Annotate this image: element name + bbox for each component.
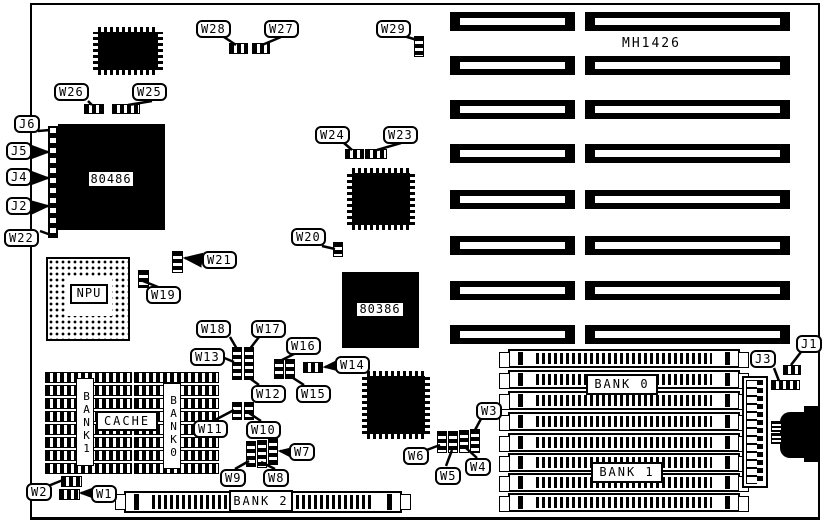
- isa-slot: [450, 144, 575, 163]
- jumper-w7: [268, 438, 278, 465]
- qfp-chip-bottom: [367, 376, 425, 434]
- jumper-w4: [459, 430, 469, 453]
- isa-slot: [450, 56, 575, 75]
- simm-socket-bank0: [508, 349, 740, 368]
- jumper-w24: [345, 149, 364, 159]
- bank0-label: BANK 0: [586, 374, 658, 395]
- callout-w15: W15: [296, 385, 331, 403]
- power-connector-contacts: [757, 380, 763, 484]
- npu-label: NPU: [70, 284, 108, 304]
- callout-w25: W25: [132, 83, 167, 101]
- qfp-chip-top-pins: [98, 70, 158, 75]
- simm-post: [134, 494, 139, 510]
- callout-j3: J3: [750, 350, 776, 368]
- callout-w8: W8: [263, 469, 289, 487]
- simm-contacts: [536, 497, 712, 508]
- isa-slot-opening: [595, 106, 780, 113]
- jumper-w20: [333, 242, 343, 257]
- callout-w26: W26: [54, 83, 89, 101]
- simm-end-tab: [499, 496, 510, 512]
- simm-post: [518, 373, 523, 386]
- simm-end-tab: [499, 352, 510, 368]
- simm-end-tab: [738, 496, 749, 512]
- isa-slot-opening: [460, 331, 565, 338]
- jumper-w16: [274, 359, 284, 379]
- qfp-chip-top: [98, 32, 158, 70]
- simm-socket-bank0: [508, 412, 740, 431]
- jumper-w14: [303, 362, 323, 373]
- simm-post: [725, 352, 730, 365]
- isa-slot: [450, 190, 575, 209]
- cpu-header-strip: [48, 126, 58, 238]
- jumper-w19: [138, 270, 149, 288]
- motherboard-diagram: MH1426 80486 NPU 80386 BANK1 BANK0 CACHE…: [0, 0, 827, 527]
- isa-slot-opening: [595, 18, 780, 25]
- cpu-80486-label: 80486: [87, 170, 135, 188]
- jumper-w9: [246, 441, 256, 467]
- simm-post: [518, 394, 523, 407]
- callout-w6: W6: [403, 447, 429, 465]
- simm-post: [725, 476, 730, 489]
- jumper-w3: [470, 429, 480, 453]
- simm-post: [725, 373, 730, 386]
- isa-slot-opening: [460, 106, 565, 113]
- qfp-chip-middle-pins: [410, 173, 415, 225]
- callout-w19: W19: [146, 286, 181, 304]
- simm-post: [725, 415, 730, 428]
- callout-w18: W18: [196, 320, 231, 338]
- jumper-w18-w13: [232, 347, 242, 380]
- simm-socket-bank1: [508, 433, 740, 452]
- callout-w5: W5: [435, 467, 461, 485]
- jumper-w17-w12: [244, 347, 254, 380]
- isa-slot-opening: [595, 331, 780, 338]
- isa-slot: [450, 236, 575, 255]
- isa-slot: [585, 190, 790, 209]
- keyboard-connector-pin-top: [771, 421, 782, 432]
- isa-slot: [450, 100, 575, 119]
- jumper-w15: [285, 359, 295, 379]
- isa-slot: [450, 12, 575, 31]
- keyboard-connector-pin-bottom: [771, 433, 782, 444]
- callout-w2: W2: [26, 483, 52, 501]
- simm-post: [518, 352, 523, 365]
- qfp-chip-top-pins: [158, 32, 163, 70]
- simm-end-tab: [400, 494, 411, 510]
- isa-slot: [585, 281, 790, 300]
- jumper-w25: [112, 104, 140, 114]
- jumper-w8: [257, 440, 267, 468]
- callout-w14: W14: [335, 356, 370, 374]
- callout-w3: W3: [476, 402, 502, 420]
- callout-j2: J2: [6, 197, 32, 215]
- isa-slot-opening: [595, 242, 780, 249]
- callout-w12: W12: [251, 385, 286, 403]
- callout-w11: W11: [193, 420, 228, 438]
- isa-slot-opening: [460, 287, 565, 294]
- jumper-w26: [84, 104, 104, 114]
- isa-slot: [585, 12, 790, 31]
- jumper-w10: [244, 402, 254, 420]
- callout-w10: W10: [246, 421, 281, 439]
- simm-end-tab: [499, 373, 510, 389]
- simm-post: [725, 436, 730, 449]
- simm-contacts: [536, 353, 712, 364]
- jumper-w27: [252, 43, 270, 54]
- callout-w23: W23: [383, 126, 418, 144]
- simm-contacts: [536, 395, 712, 406]
- cache-bank1-label: BANK1: [76, 378, 94, 466]
- callout-j1: J1: [796, 335, 822, 353]
- cache-bank0-label: BANK0: [163, 383, 181, 469]
- simm-post: [518, 415, 523, 428]
- isa-slot: [585, 144, 790, 163]
- callout-j5: J5: [6, 142, 32, 160]
- isa-slot: [585, 325, 790, 344]
- cache-dip-chip: [134, 372, 219, 383]
- callout-j4: J4: [6, 168, 32, 186]
- isa-slot-opening: [460, 62, 565, 69]
- callout-w17: W17: [251, 320, 286, 338]
- jumper-w1: [59, 489, 80, 500]
- simm-end-tab: [499, 476, 510, 492]
- callout-w29: W29: [376, 20, 411, 38]
- bank1-label: BANK 1: [591, 462, 663, 483]
- simm-contacts: [536, 416, 712, 427]
- callout-w1: W1: [91, 485, 117, 503]
- simm-post: [518, 456, 523, 469]
- jumper-w5: [448, 431, 458, 453]
- simm-contacts: [536, 437, 712, 448]
- isa-slot-opening: [595, 287, 780, 294]
- power-connector: [742, 376, 768, 488]
- qfp-chip-middle: [352, 173, 410, 225]
- isa-slot-opening: [460, 150, 565, 157]
- jumper-w29: [414, 36, 424, 57]
- isa-slot-opening: [460, 196, 565, 203]
- simm-end-tab: [499, 436, 510, 452]
- jumper-j3: [771, 380, 800, 390]
- isa-slot-opening: [460, 18, 565, 25]
- isa-slot: [585, 100, 790, 119]
- board-model-label: MH1426: [622, 36, 681, 51]
- jumper-w28: [229, 43, 248, 54]
- qfp-chip-middle-pins: [352, 225, 410, 230]
- qfp-chip-bottom-pins: [367, 434, 425, 439]
- isa-slot: [450, 281, 575, 300]
- callout-w24: W24: [315, 126, 350, 144]
- jumper-w2: [61, 476, 82, 487]
- isa-slot: [585, 236, 790, 255]
- callout-w27: W27: [264, 20, 299, 38]
- simm-end-tab: [499, 456, 510, 472]
- chip-80386-label: 80386: [355, 301, 405, 318]
- simm-socket-bank1: [508, 493, 740, 512]
- jumper-w6: [437, 431, 447, 453]
- jumper-j1: [783, 365, 801, 375]
- isa-slot-opening: [595, 196, 780, 203]
- callout-w13: W13: [190, 348, 225, 366]
- callout-w7: W7: [289, 443, 315, 461]
- bank2-label: BANK 2: [229, 490, 293, 512]
- simm-post: [518, 436, 523, 449]
- callout-w21: W21: [202, 251, 237, 269]
- simm-post: [725, 394, 730, 407]
- isa-slot: [450, 325, 575, 344]
- keyboard-connector: [780, 412, 810, 458]
- simm-post: [518, 476, 523, 489]
- simm-post: [518, 496, 523, 509]
- simm-post: [387, 494, 392, 510]
- simm-end-tab: [738, 352, 749, 368]
- callout-j6: J6: [14, 115, 40, 133]
- jumper-w23: [365, 149, 387, 159]
- simm-post: [725, 456, 730, 469]
- callout-w22: W22: [4, 229, 39, 247]
- callout-w20: W20: [291, 228, 326, 246]
- isa-slot-opening: [460, 242, 565, 249]
- isa-slot-opening: [595, 150, 780, 157]
- simm-post: [725, 496, 730, 509]
- qfp-chip-bottom-pins: [425, 376, 430, 434]
- isa-slot: [585, 56, 790, 75]
- callout-w28: W28: [196, 20, 231, 38]
- callout-w4: W4: [465, 458, 491, 476]
- isa-slot-opening: [595, 62, 780, 69]
- callout-w9: W9: [220, 469, 246, 487]
- jumper-w21: [172, 251, 183, 273]
- cache-label: CACHE: [96, 411, 158, 431]
- jumper-w11: [232, 402, 242, 420]
- callout-w16: W16: [286, 337, 321, 355]
